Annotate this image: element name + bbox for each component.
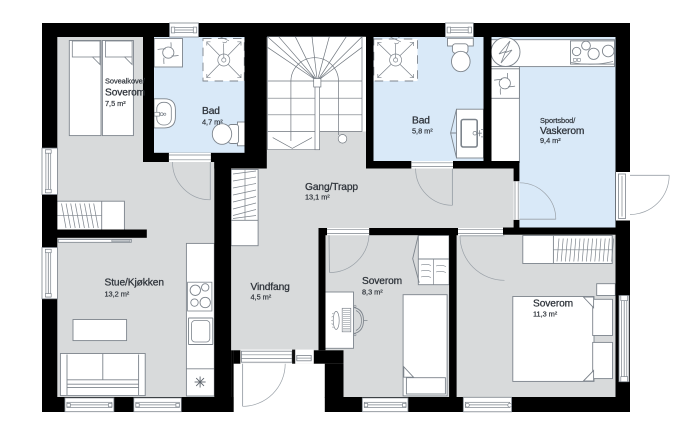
svg-text:9,4 m²: 9,4 m² <box>540 136 561 145</box>
svg-text:Soverom: Soverom <box>362 276 402 287</box>
svg-text:Bad: Bad <box>412 116 430 127</box>
svg-text:13,1 m²: 13,1 m² <box>305 193 330 202</box>
svg-text:5,8 m²: 5,8 m² <box>412 127 433 136</box>
svg-text:4,7 m²: 4,7 m² <box>202 118 223 127</box>
svg-text:Soverom: Soverom <box>533 299 573 310</box>
svg-text:4,5 m²: 4,5 m² <box>251 293 272 302</box>
svg-text:Soverom: Soverom <box>105 88 145 99</box>
svg-text:8,3 m²: 8,3 m² <box>362 288 383 297</box>
svg-text:Stue/Kjøkken: Stue/Kjøkken <box>105 278 164 289</box>
svg-text:13,2 m²: 13,2 m² <box>105 290 130 299</box>
svg-text:Bad: Bad <box>202 106 220 117</box>
svg-text:11,3 m²: 11,3 m² <box>533 310 558 319</box>
svg-text:Sovealkove/: Sovealkove/ <box>105 77 146 86</box>
svg-text:Vindfang: Vindfang <box>251 282 291 293</box>
svg-text:Gang/Trapp: Gang/Trapp <box>305 182 358 193</box>
svg-text:7,5 m²: 7,5 m² <box>105 99 126 108</box>
svg-text:Sportsbod/: Sportsbod/ <box>540 116 576 125</box>
